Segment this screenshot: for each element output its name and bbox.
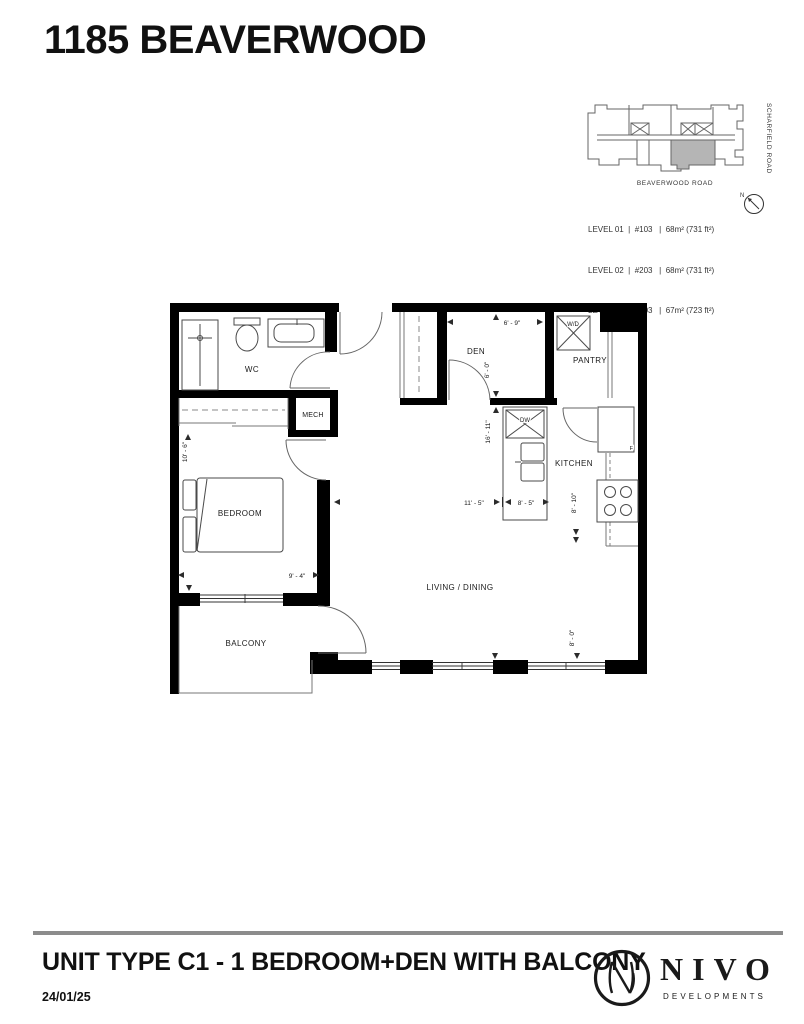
- bedroom-door: [286, 440, 326, 480]
- brand-tagline: DEVELOPMENTS: [663, 992, 766, 1001]
- room-label-pantry: PANTRY: [573, 356, 607, 365]
- shower-icon: [182, 320, 218, 390]
- unit-title: UNIT TYPE C1 - 1 BEDROOM+DEN WITH BALCON…: [42, 948, 646, 977]
- nivo-monogram-icon: [590, 947, 654, 1011]
- dishwasher-label: DW: [520, 418, 530, 424]
- kitchen-counter: [606, 453, 638, 546]
- wc-door: [290, 352, 330, 388]
- dim-kitchen-height: 8' - 10": [571, 492, 578, 513]
- pantry-shelves: [608, 332, 612, 398]
- room-label-den: DEN: [467, 347, 485, 356]
- balcony-door: [318, 606, 366, 653]
- dim-bedroom-height: 10' - 6": [182, 441, 189, 462]
- entry-closet: [400, 312, 419, 398]
- bedroom-closet: [179, 398, 288, 429]
- dim-island-width: 8' - 5": [518, 500, 535, 507]
- balcony-outline: [179, 606, 312, 693]
- room-label-bedroom: BEDROOM: [218, 509, 262, 518]
- key-plan-building: [588, 105, 743, 171]
- highlighted-unit: [671, 140, 715, 169]
- level-row: LEVEL 02 | #203 | 68m² (731 ft²): [588, 264, 714, 278]
- room-label-mech: MECH: [302, 412, 323, 419]
- dimension-arrows: [178, 314, 580, 659]
- elevator-core-icon: [631, 123, 713, 135]
- toilet-icon: [234, 318, 260, 351]
- room-label-kitchen: KITCHEN: [555, 459, 593, 468]
- sink-icon: [268, 319, 324, 347]
- road-label-bottom: BEAVERWOOD ROAD: [637, 180, 713, 187]
- brand-name: NIVO: [660, 951, 779, 988]
- bedroom-window: [200, 594, 283, 603]
- room-label-living-dining: LIVING / DINING: [427, 583, 494, 592]
- floor-plan-drawing: WC MECH BEDROOM BALCONY DEN PANTRY KITCH…: [160, 290, 660, 710]
- key-plan-drawing: BEAVERWOOD ROAD SCHARFIELD ROAD: [585, 95, 785, 190]
- road-label-right: SCHARFIELD ROAD: [765, 103, 772, 174]
- level-row: LEVEL 01 | #103 | 68m² (731 ft²): [588, 223, 714, 237]
- room-label-wc: WC: [245, 365, 259, 374]
- dim-living-width: 11' - 5": [464, 500, 484, 507]
- fridge-label: F: [630, 446, 634, 452]
- island-sink-icon: [515, 443, 544, 481]
- floor-plan-sheet: 1185 BEAVERWOOD: [0, 0, 804, 1024]
- plan-date: 24/01/25: [42, 990, 91, 1004]
- dim-bedroom-width: 9' - 4": [289, 573, 306, 580]
- north-label: N: [740, 193, 744, 199]
- page-title: 1185 BEAVERWOOD: [44, 18, 426, 63]
- footer-divider: [33, 931, 783, 935]
- dim-den-width: 6' - 9": [504, 320, 521, 327]
- stove-icon: [597, 480, 638, 522]
- dim-window-height: 8' - 0": [569, 629, 576, 646]
- room-label-balcony: BALCONY: [225, 639, 266, 648]
- dim-den-height: 6' - 0": [484, 361, 491, 378]
- dim-hall-height: 16' - 11": [485, 420, 492, 444]
- washer-dryer-label: W/D: [567, 322, 579, 328]
- fridge-icon: [598, 407, 634, 452]
- pantry-door: [563, 408, 597, 442]
- north-arrow-icon: N: [737, 187, 771, 221]
- entry-door: [340, 312, 382, 354]
